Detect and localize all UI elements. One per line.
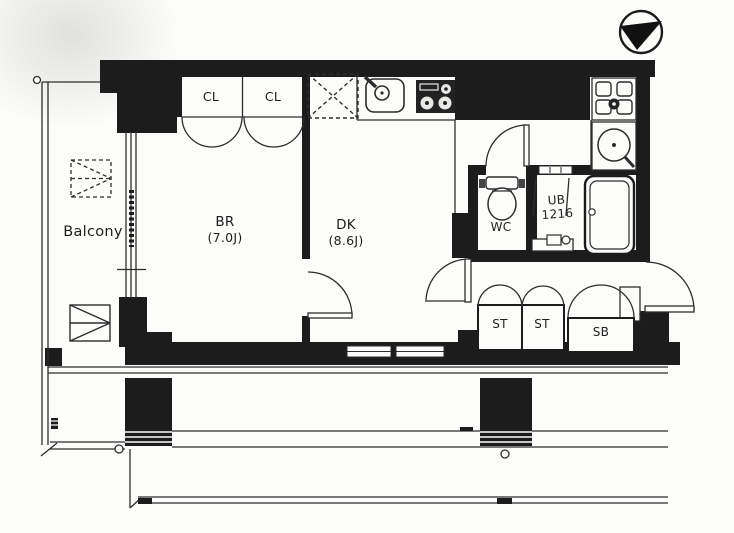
closet-left-door-arc-1 bbox=[182, 117, 212, 147]
corridor-post-left bbox=[115, 445, 123, 453]
stove-icon bbox=[416, 80, 455, 113]
entrance-door-arc bbox=[646, 262, 694, 310]
eave-tick-left bbox=[138, 498, 152, 504]
dining-kitchen-area: (8.6J) bbox=[303, 233, 389, 248]
balcony-rail-hatch bbox=[51, 418, 58, 429]
wall-br-window-bottom bbox=[119, 297, 147, 347]
wall-kitchen-chunk bbox=[455, 62, 590, 120]
bedroom-label: BR (7.0J) bbox=[182, 214, 268, 245]
bedroom-area: (7.0J) bbox=[182, 230, 268, 245]
detail-circles bbox=[34, 77, 510, 459]
wall-right bbox=[636, 60, 650, 258]
dining-kitchen-name: DK bbox=[303, 217, 389, 233]
balcony-label: Balcony bbox=[50, 224, 136, 241]
wall-closet-left bbox=[174, 77, 182, 117]
north-compass-icon bbox=[620, 11, 662, 53]
entrance-side-panel bbox=[620, 287, 640, 321]
corridor-post-right bbox=[501, 450, 509, 458]
pillars bbox=[51, 378, 532, 504]
closet-right-door-arc-2 bbox=[274, 117, 304, 147]
corridor-tick bbox=[460, 427, 473, 431]
shoe-box-door-arc-1 bbox=[568, 285, 601, 318]
toilet-label: WC bbox=[484, 220, 518, 234]
bath-counter-icon bbox=[532, 235, 573, 251]
wall-wc-left bbox=[468, 165, 478, 258]
pillar-left bbox=[125, 378, 172, 428]
shoe-box-label: SB bbox=[583, 325, 619, 339]
unit-bath-label: UB 1216 bbox=[536, 192, 578, 224]
floor-plan-drawing bbox=[0, 0, 734, 533]
wc-door-arc bbox=[486, 125, 527, 166]
dk-bottom-windows bbox=[347, 346, 444, 357]
wall-partition-lower bbox=[302, 316, 310, 344]
wall-wc-stub bbox=[478, 165, 486, 175]
dk-door-arc bbox=[426, 259, 469, 302]
wall-br-window-top bbox=[117, 80, 145, 133]
balcony-panel-icon bbox=[70, 305, 110, 341]
closet-left-door-arc-2 bbox=[212, 117, 242, 147]
bedroom-door-leaf bbox=[308, 313, 352, 318]
escape-hatch-icon bbox=[71, 160, 111, 197]
storage-left-door-arc-2 bbox=[500, 285, 522, 307]
eave-tick-right bbox=[497, 498, 512, 504]
washing-machine-pan-icon bbox=[592, 78, 636, 120]
unit-bath-size: 1216 bbox=[537, 206, 578, 223]
wc-door-leaf bbox=[524, 125, 529, 166]
storage-left-door-arc-1 bbox=[478, 285, 500, 307]
dk-door-leaf bbox=[465, 259, 471, 302]
wash-basin-icon bbox=[592, 122, 636, 170]
closet-right-door-arc-1 bbox=[244, 117, 274, 147]
bathtub-icon bbox=[585, 176, 634, 254]
bedroom-name: BR bbox=[182, 214, 268, 230]
ub-sliding-door bbox=[539, 166, 572, 174]
storage-right-door-arc-1 bbox=[522, 286, 543, 307]
refrigerator-space-box bbox=[308, 74, 358, 118]
closet-left-label: CL bbox=[193, 89, 229, 104]
corner-post-circle bbox=[34, 77, 41, 84]
storage-right-door-arc-2 bbox=[543, 286, 564, 307]
dining-kitchen-label: DK (8.6J) bbox=[303, 217, 389, 248]
floor-plan: Balcony CL CL BR (7.0J) DK (8.6J) WC UB … bbox=[0, 0, 734, 533]
kitchen-sink-icon bbox=[365, 77, 404, 112]
storage-left-label: ST bbox=[482, 317, 518, 331]
toilet-icon bbox=[479, 177, 525, 220]
bedroom-door-arc bbox=[308, 272, 352, 316]
pillar-right bbox=[480, 378, 532, 428]
closet-right-label: CL bbox=[255, 89, 291, 104]
entrance-door-leaf bbox=[645, 306, 694, 312]
storage-right-label: ST bbox=[524, 317, 560, 331]
wall-st-step bbox=[458, 330, 478, 344]
